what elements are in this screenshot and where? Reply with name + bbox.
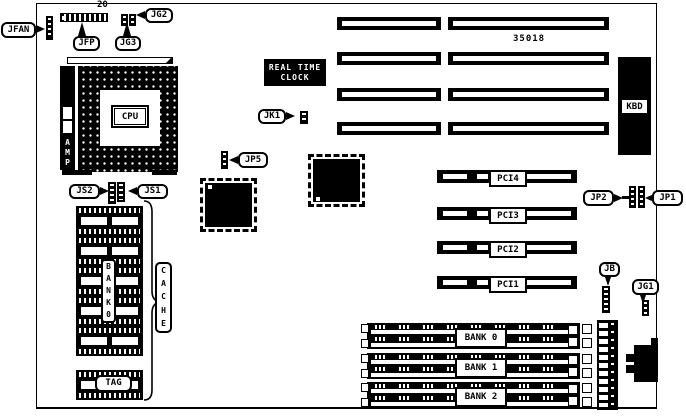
- cpu-label: CPU: [114, 108, 146, 125]
- tag-label: TAG: [95, 375, 132, 392]
- simm-bank-2: BANK 2: [367, 382, 580, 408]
- callout-js2: JS2: [69, 184, 100, 199]
- jfan-pointer: [36, 25, 45, 33]
- cache-chip: [76, 206, 143, 236]
- front-panel-header: [60, 13, 108, 22]
- isa-slot-seg: [337, 88, 441, 101]
- simm-bank-1: BANK 1: [367, 353, 580, 379]
- rtc-line2: CLOCK: [280, 73, 309, 83]
- callout-jfp: JFP: [73, 36, 100, 51]
- jg3-pointer: [123, 22, 131, 36]
- bank0-vertical-label: BA NK 0: [101, 259, 116, 323]
- callout-jp2: JP2: [583, 190, 614, 206]
- jp2-pointer-stub: [622, 196, 630, 199]
- simm-bank-0: BANK 0: [367, 323, 580, 349]
- callout-jb: JB: [599, 262, 620, 277]
- qfp1-pin1-dot: [208, 185, 212, 189]
- amp-regulator: A M P: [60, 66, 75, 170]
- jfp-pointer: [78, 22, 86, 36]
- isa-slot-seg: [337, 122, 441, 135]
- power-connector: [597, 320, 618, 410]
- pci1-label: PCI1: [489, 276, 527, 293]
- js2-pointer: [100, 187, 109, 195]
- cpu-socket-lever: [67, 57, 173, 64]
- jumper-jp2-jp1-a: [629, 186, 636, 208]
- pci-slot-pci4: PCI4: [437, 170, 577, 183]
- kbd-label: KBD: [621, 99, 648, 114]
- pci-slot-pci1: PCI1: [437, 276, 577, 289]
- amp-pad: [63, 107, 72, 119]
- isa-slot-seg: [448, 17, 609, 30]
- amp-letter: P: [60, 158, 75, 168]
- isa-slot-seg: [337, 17, 441, 30]
- motherboard-diagram: JFAN 20 JFP JG2 JG3 A M P CPU REAL TIME …: [0, 0, 686, 417]
- socket-foot: [152, 170, 177, 175]
- keyboard-controller-chip: KBD: [618, 57, 651, 155]
- pci-slot-pci2: PCI2: [437, 241, 577, 254]
- part-number: 35018: [513, 35, 545, 44]
- amp-letter: A: [60, 138, 75, 148]
- callout-jk1: JK1: [258, 109, 286, 124]
- din-connector-pin: [626, 365, 635, 373]
- callout-js1: JS1: [137, 184, 168, 199]
- jk1-pointer: [286, 112, 295, 120]
- pci3-label: PCI3: [489, 207, 527, 224]
- isa-slot-seg: [448, 122, 609, 135]
- real-time-clock-chip: REAL TIME CLOCK: [264, 59, 326, 86]
- jp2-pointer: [614, 194, 623, 202]
- bank0-label: BANK 0: [455, 328, 507, 348]
- bank2-label: BANK 2: [455, 387, 507, 407]
- amp-letter: M: [60, 148, 75, 158]
- jumper-js-a: [108, 182, 116, 204]
- socket-foot: [62, 170, 92, 175]
- pci-slot-pci3: PCI3: [437, 207, 577, 220]
- callout-jp1: JP1: [652, 190, 683, 206]
- pci4-label: PCI4: [489, 170, 527, 187]
- din-connector-step: [651, 338, 658, 346]
- jumper-jb: [602, 286, 610, 313]
- lever-corner: [166, 57, 172, 63]
- jb-pointer: [605, 277, 611, 286]
- isa-slot-seg: [337, 52, 441, 65]
- isa-slot-seg: [448, 52, 609, 65]
- cache-vertical-label: CA CH E: [155, 262, 172, 333]
- js1-pointer: [128, 187, 137, 195]
- isa-slot-seg: [448, 88, 609, 101]
- pin-20-label: 20: [97, 1, 108, 10]
- fan-header: [46, 16, 53, 40]
- rtc-line1: REAL TIME: [269, 63, 321, 73]
- callout-jg1: JG1: [632, 279, 659, 295]
- din-connector-pin: [626, 354, 635, 362]
- jumper-jk1: [300, 111, 308, 124]
- din-connector-body: [634, 345, 658, 382]
- callout-jg3: JG3: [115, 36, 141, 51]
- jp5-pointer: [229, 156, 238, 164]
- jg2-pointer: [136, 11, 145, 19]
- qfp2-pin1-dot: [316, 197, 320, 201]
- callout-jg2: JG2: [145, 8, 173, 23]
- callout-jfan: JFAN: [1, 22, 36, 38]
- jumper-js-b: [117, 182, 125, 202]
- cache-chip: [76, 326, 143, 356]
- pci2-label: PCI2: [489, 241, 527, 258]
- jumper-jp2-jp1-b: [638, 186, 645, 208]
- amp-pad: [63, 121, 72, 133]
- jumper-jp5: [221, 151, 228, 169]
- jg1-pointer: [640, 295, 646, 304]
- callout-jp5: JP5: [238, 152, 268, 168]
- bank1-label: BANK 1: [455, 358, 507, 378]
